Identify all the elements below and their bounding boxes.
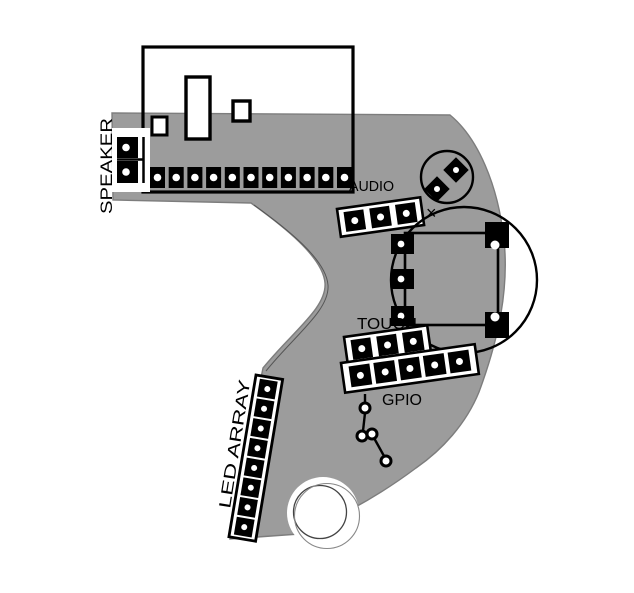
module-part-tall xyxy=(186,77,210,139)
pcb-diagram: SPEAKER AUDIO × TOUCH GPIO LED ARRAY xyxy=(0,0,634,593)
pcb-layout-svg: SPEAKER AUDIO × TOUCH GPIO LED ARRAY xyxy=(0,0,634,593)
module-header-pads xyxy=(150,167,352,188)
speaker-connector xyxy=(112,128,150,192)
mounting-hole xyxy=(287,477,360,549)
module-part-small-mid xyxy=(233,101,250,121)
gpio-label: GPIO xyxy=(382,392,422,409)
audio-label: AUDIO xyxy=(349,178,394,195)
module-part-small-left xyxy=(152,117,167,135)
speaker-label: SPEAKER xyxy=(97,118,116,214)
